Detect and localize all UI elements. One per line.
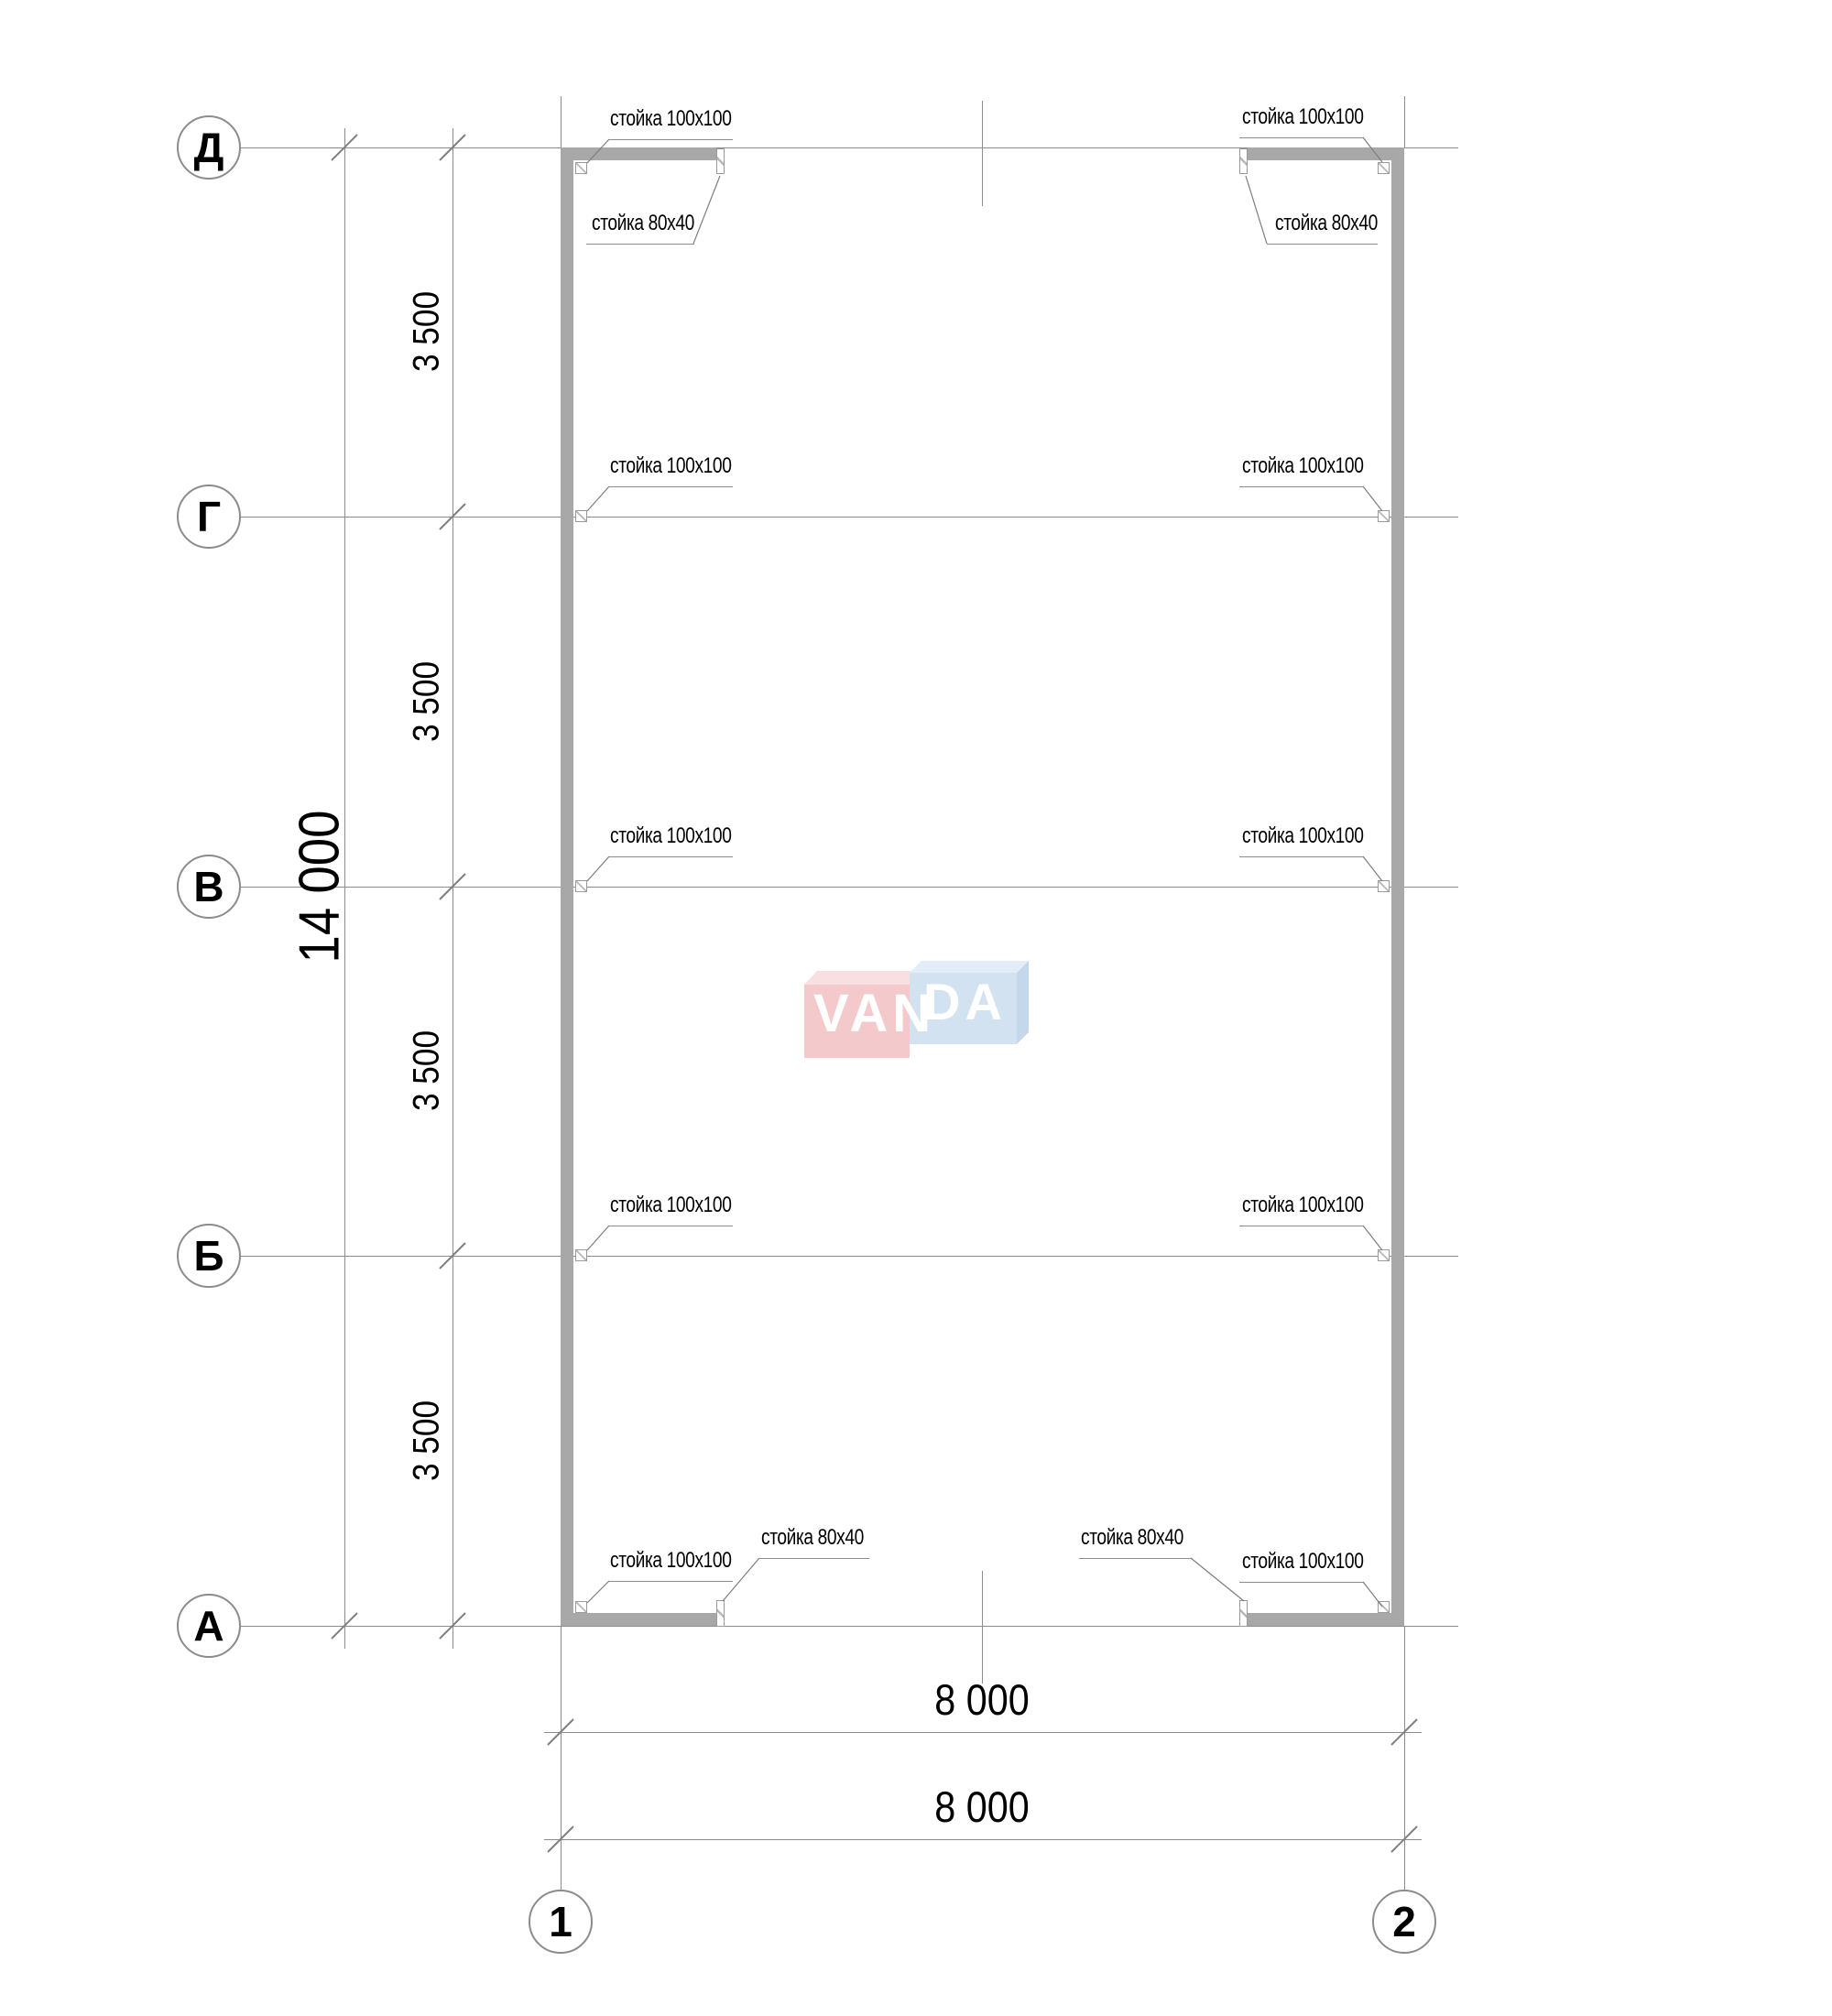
logo-cube-blue-top — [910, 961, 1029, 973]
grid-line-col-1-top — [561, 96, 562, 147]
logo-text-van: VAN — [813, 987, 935, 1041]
wall-top-left-segment — [561, 147, 716, 160]
axis-label: 2 — [1392, 1901, 1416, 1943]
post-100x100-left-row-v — [575, 880, 587, 892]
dim-line-bays — [453, 128, 453, 1649]
dim-text-bay-1: 3 500 — [407, 291, 448, 372]
leader-underline — [1239, 486, 1363, 487]
leader-underline — [609, 856, 733, 857]
leader-underline — [1239, 1226, 1363, 1226]
post-80x40-bottom-left — [716, 1600, 725, 1627]
leader-underline — [1079, 1558, 1191, 1559]
axis-label: В — [193, 866, 224, 908]
axis-bubble-row-v: В — [177, 855, 241, 919]
leader-underline — [609, 1226, 733, 1226]
wall-right — [1391, 147, 1404, 1626]
dim-text-total-height: 14 000 — [288, 811, 353, 964]
grid-line-row-b — [241, 1256, 1458, 1257]
opening-centerline-bottom — [982, 1571, 983, 1684]
dim-text-bay-4: 3 500 — [407, 1400, 448, 1481]
logo-cube-blue-side — [1017, 961, 1029, 1044]
dim-text-bay-2: 3 500 — [407, 661, 448, 742]
leader-underline — [1239, 856, 1363, 857]
axis-bubble-row-a: А — [177, 1594, 241, 1658]
leader-underline — [1239, 137, 1363, 138]
post-label-80-top-left: стойка 80x40 — [592, 211, 694, 236]
post-label-80-bottom-left: стойка 80x40 — [761, 1525, 864, 1551]
post-label-100-left-row-g: стойка 100x100 — [610, 453, 731, 479]
post-label-100-right-row-v: стойка 100x100 — [1242, 823, 1363, 849]
axis-bubble-row-g: Г — [177, 485, 241, 549]
post-label-80-top-right: стойка 80x40 — [1275, 211, 1378, 236]
post-label-100-top-left: стойка 100x100 — [610, 106, 731, 132]
leader-lines — [587, 137, 1382, 1607]
grid-line-col-1-bottom — [561, 1626, 562, 1890]
post-100x100-left-row-g — [575, 510, 587, 522]
grid-line-col-2-top — [1404, 96, 1405, 147]
post-80x40-bottom-right — [1239, 1600, 1248, 1627]
post-100x100-top-right — [1378, 162, 1390, 174]
wall-top-right-segment — [1248, 147, 1404, 160]
dim-line-width-1 — [544, 1732, 1422, 1733]
axis-label: Г — [197, 496, 221, 538]
post-label-100-bottom-left: стойка 100x100 — [610, 1548, 731, 1574]
post-100x100-right-row-b — [1378, 1249, 1390, 1261]
logo-text-da: DA — [923, 976, 1007, 1028]
leader-underline — [759, 1558, 869, 1559]
grid-line-row-a — [241, 1626, 1458, 1627]
leader-underline — [609, 486, 733, 487]
post-label-100-top-right: стойка 100x100 — [1242, 104, 1363, 130]
dim-text-bay-3: 3 500 — [407, 1030, 448, 1111]
axis-label: Б — [193, 1235, 224, 1277]
axis-bubble-row-d: Д — [177, 115, 241, 180]
floor-plan: VAN DA — [0, 0, 1832, 2016]
axis-bubble-row-b: Б — [177, 1224, 241, 1288]
leader-underline — [1267, 244, 1378, 245]
grid-line-row-g — [241, 517, 1458, 518]
post-100x100-right-row-v — [1378, 880, 1390, 892]
post-100x100-left-row-b — [575, 1249, 587, 1261]
axis-bubble-col-1: 1 — [529, 1890, 593, 1954]
post-label-100-right-row-g: стойка 100x100 — [1242, 453, 1363, 479]
post-label-100-left-row-v: стойка 100x100 — [610, 823, 731, 849]
logo-cube-pink-top — [804, 971, 922, 985]
post-100x100-top-left — [575, 162, 587, 174]
axis-bubble-col-2: 2 — [1372, 1890, 1436, 1954]
post-label-100-left-row-b: стойка 100x100 — [610, 1193, 731, 1218]
dim-line-width-2 — [544, 1839, 1422, 1840]
dim-text-width-2: 8 000 — [934, 1782, 1030, 1832]
leader-underline — [609, 139, 733, 140]
post-100x100-bottom-right — [1378, 1601, 1390, 1613]
post-80x40-top-left — [716, 148, 725, 174]
post-label-100-bottom-right: стойка 100x100 — [1242, 1549, 1363, 1575]
leader-underline — [1239, 1582, 1363, 1583]
post-label-100-right-row-b: стойка 100x100 — [1242, 1193, 1363, 1218]
grid-line-col-2-bottom — [1404, 1626, 1405, 1890]
wall-left — [561, 147, 573, 1626]
leader-underline — [609, 1581, 733, 1582]
post-80x40-top-right — [1239, 148, 1248, 174]
wall-bottom-left-segment — [561, 1613, 716, 1626]
axis-label: А — [193, 1605, 224, 1647]
vanda-watermark: VAN DA — [792, 957, 1040, 1067]
leader-underline — [586, 244, 694, 245]
axis-label: Д — [194, 126, 224, 169]
grid-line-row-v — [241, 887, 1458, 888]
dim-text-width-1: 8 000 — [934, 1674, 1030, 1725]
post-100x100-right-row-g — [1378, 510, 1390, 522]
wall-bottom-right-segment — [1248, 1613, 1404, 1626]
opening-centerline-top — [982, 101, 983, 206]
post-label-80-bottom-right: стойка 80x40 — [1081, 1525, 1183, 1551]
axis-label: 1 — [549, 1901, 572, 1943]
post-100x100-bottom-left — [575, 1601, 587, 1613]
